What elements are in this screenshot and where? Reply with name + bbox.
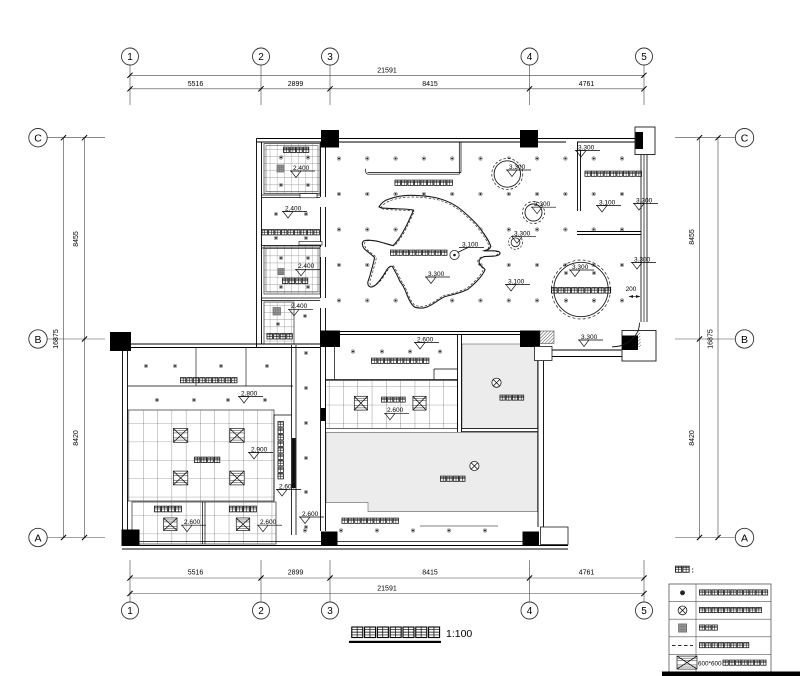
svg-text:5: 5 [641, 606, 647, 617]
svg-text:4761: 4761 [579, 570, 595, 577]
svg-text:C: C [741, 132, 749, 144]
svg-text:8455: 8455 [689, 229, 696, 245]
svg-text:16875: 16875 [53, 329, 60, 349]
svg-text:1:100: 1:100 [446, 628, 472, 640]
svg-text:21591: 21591 [377, 586, 397, 593]
svg-text:5516: 5516 [188, 81, 204, 88]
svg-text::: : [692, 568, 694, 575]
svg-text:3: 3 [327, 606, 333, 617]
svg-text:2: 2 [258, 606, 264, 617]
svg-text:A: A [741, 532, 748, 544]
svg-text:21591: 21591 [377, 67, 397, 74]
svg-text:5516: 5516 [188, 570, 204, 577]
svg-text:8420: 8420 [73, 430, 80, 446]
svg-text:2: 2 [258, 52, 264, 63]
svg-text:8415: 8415 [422, 570, 438, 577]
svg-text:3: 3 [327, 52, 333, 63]
svg-text:600*600: 600*600 [698, 661, 722, 668]
svg-text:16875: 16875 [708, 329, 715, 349]
svg-text:5: 5 [641, 52, 647, 63]
svg-text:B: B [741, 334, 748, 346]
svg-text:8455: 8455 [73, 231, 80, 247]
svg-text:A: A [34, 532, 41, 544]
svg-text:B: B [34, 334, 41, 346]
svg-text:4761: 4761 [579, 81, 595, 88]
svg-text:C: C [34, 132, 42, 144]
svg-text:2899: 2899 [288, 570, 304, 577]
svg-text:8415: 8415 [422, 81, 438, 88]
svg-text:1: 1 [127, 606, 133, 617]
svg-text:1: 1 [127, 52, 133, 63]
svg-text:200: 200 [626, 286, 637, 293]
svg-text:3.100: 3.100 [462, 241, 479, 248]
svg-text:2899: 2899 [288, 81, 304, 88]
svg-text:4: 4 [527, 606, 533, 617]
svg-text:4: 4 [527, 52, 533, 63]
svg-text:8420: 8420 [689, 430, 696, 446]
